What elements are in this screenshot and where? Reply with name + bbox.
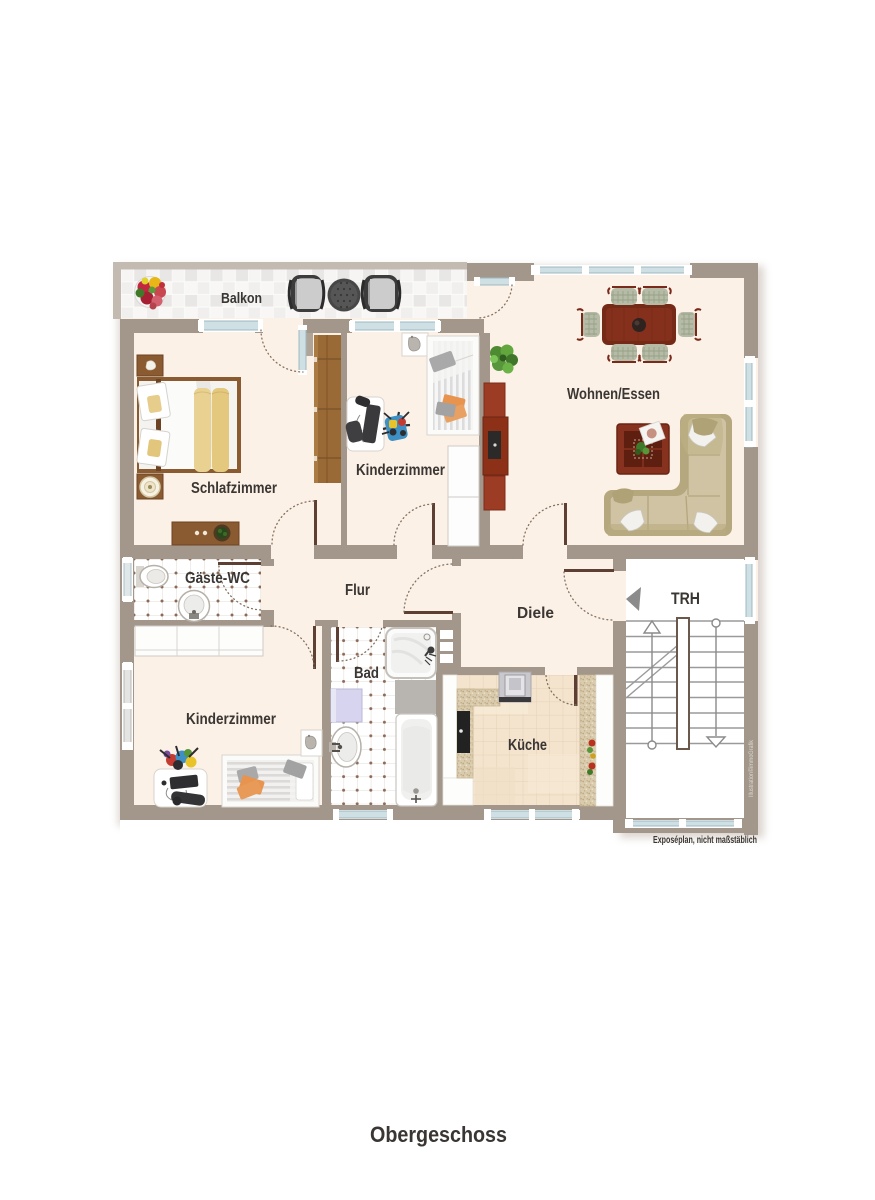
svg-text:Kinderzimmer: Kinderzimmer (356, 462, 445, 479)
svg-text:Gäste-WC: Gäste-WC (185, 570, 250, 587)
svg-text:Balkon: Balkon (221, 291, 262, 307)
svg-text:Obergeschoss: Obergeschoss (370, 1122, 507, 1147)
svg-text:Schlafzimmer: Schlafzimmer (191, 480, 277, 497)
svg-text:Kinderzimmer: Kinderzimmer (186, 711, 276, 728)
svg-text:Illustration©immoGrafik: Illustration©immoGrafik (747, 739, 755, 797)
svg-text:Bad: Bad (354, 665, 379, 682)
svg-text:Flur: Flur (345, 582, 370, 599)
svg-text:Küche: Küche (508, 737, 547, 754)
svg-text:Diele: Diele (517, 605, 554, 622)
svg-text:Wohnen/Essen: Wohnen/Essen (567, 386, 660, 403)
svg-text:Exposéplan, nicht maßstäblich: Exposéplan, nicht maßstäblich (653, 834, 757, 846)
svg-text:TRH: TRH (671, 590, 700, 608)
